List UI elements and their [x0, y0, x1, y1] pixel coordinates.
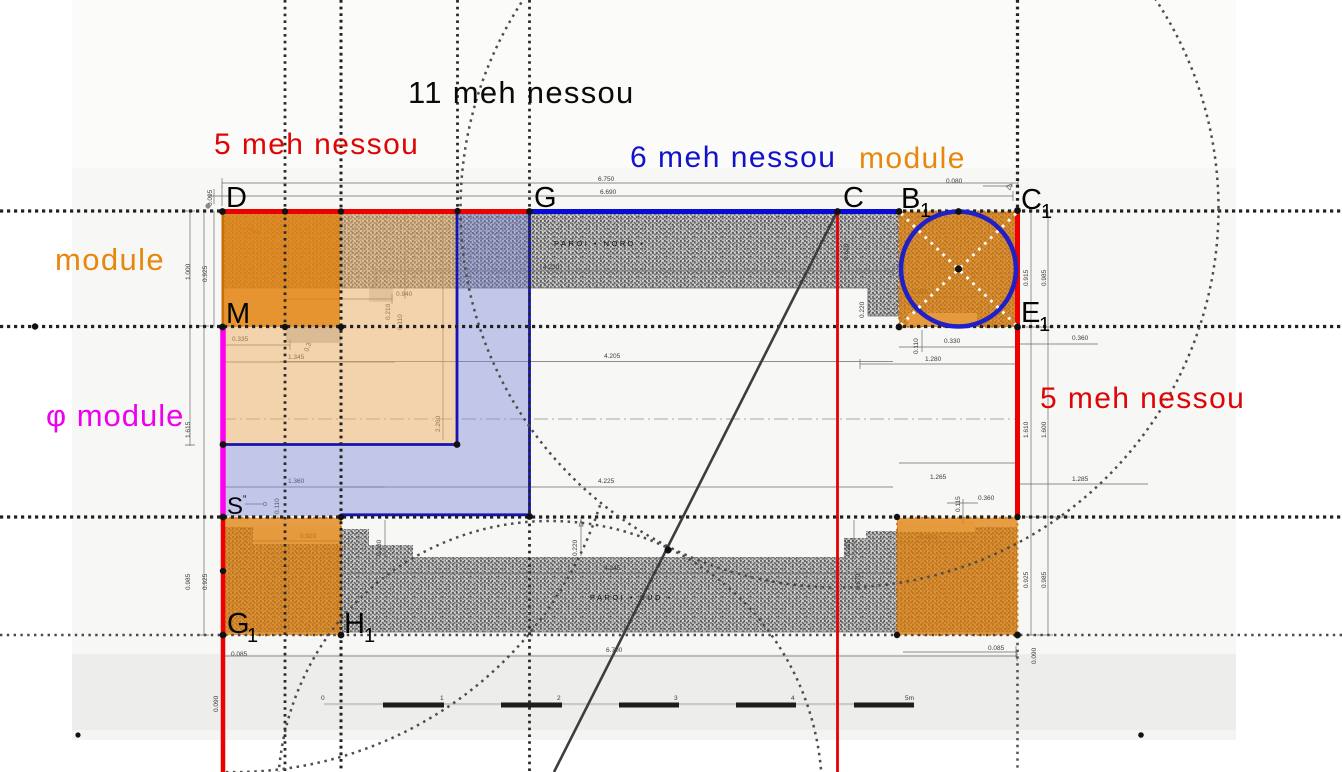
svg-text:3: 3: [674, 695, 678, 702]
svg-text:0.085: 0.085: [988, 645, 1005, 652]
svg-text:0.085: 0.085: [231, 651, 248, 658]
svg-text:PAROI • SUD •: PAROI • SUD •: [590, 593, 673, 602]
svg-text:6.690: 6.690: [600, 189, 617, 196]
svg-text:0.985: 0.985: [1041, 269, 1048, 286]
svg-text:1: 1: [1039, 314, 1050, 336]
svg-text:C: C: [1021, 184, 1042, 216]
svg-text:S: S: [227, 493, 243, 520]
svg-text:0.230: 0.230: [376, 539, 383, 556]
svg-text:0.080: 0.080: [946, 178, 963, 185]
svg-text:1.615: 1.615: [185, 421, 192, 438]
svg-text:0.220: 0.220: [859, 301, 866, 318]
svg-text:D: D: [226, 182, 247, 214]
svg-text:1: 1: [364, 625, 375, 647]
svg-text:B: B: [901, 183, 920, 215]
svg-text:module: module: [859, 142, 966, 175]
svg-text:4.225: 4.225: [598, 478, 615, 485]
svg-text:2: 2: [557, 695, 561, 702]
svg-text:0.220: 0.220: [572, 539, 579, 556]
svg-text:1.265: 1.265: [930, 474, 947, 481]
svg-text:4.205: 4.205: [604, 353, 621, 360]
svg-text:4.230: 4.230: [543, 264, 560, 271]
svg-text:0: 0: [321, 695, 325, 702]
svg-text:0.090: 0.090: [1031, 647, 1038, 664]
svg-text:0.090: 0.090: [213, 695, 220, 712]
svg-text:0.215: 0.215: [845, 539, 852, 556]
svg-text:1.600: 1.600: [1041, 421, 1048, 438]
svg-text:“: “: [243, 494, 246, 505]
svg-text:0.925: 0.925: [202, 573, 209, 590]
svg-text:G: G: [534, 182, 557, 214]
svg-text:PAROI • NORD •: PAROI • NORD •: [554, 239, 645, 248]
svg-text:0.620: 0.620: [843, 243, 850, 260]
svg-text:C: C: [843, 182, 864, 214]
svg-text:1.285: 1.285: [1072, 476, 1089, 483]
svg-text:5 meh nessou: 5 meh nessou: [1040, 382, 1245, 415]
svg-text:0.360: 0.360: [978, 495, 995, 502]
svg-text:1: 1: [440, 695, 444, 702]
svg-text:φ module: φ module: [46, 398, 184, 433]
svg-text:0.360: 0.360: [1072, 335, 1089, 342]
svg-text:4: 4: [791, 695, 795, 702]
svg-text:1: 1: [920, 200, 931, 222]
svg-text:6 meh nessou: 6 meh nessou: [630, 141, 836, 174]
svg-text:1: 1: [247, 625, 258, 647]
svg-text:1.000: 1.000: [185, 263, 192, 280]
svg-text:5 meh nessou: 5 meh nessou: [214, 128, 419, 161]
svg-text:0.330: 0.330: [944, 338, 961, 345]
svg-text:6.750: 6.750: [598, 176, 615, 183]
svg-text:E: E: [1021, 297, 1040, 329]
svg-text:0.915: 0.915: [1023, 269, 1030, 286]
svg-text:0.985: 0.985: [185, 573, 192, 590]
svg-text:0.925: 0.925: [1023, 571, 1030, 588]
svg-text:H: H: [344, 608, 365, 640]
svg-text:0.110: 0.110: [913, 338, 920, 354]
svg-text:M: M: [226, 298, 250, 330]
svg-text:11 meh nessou: 11 meh nessou: [408, 75, 635, 110]
svg-text:1: 1: [1041, 201, 1052, 223]
svg-text:0.115: 0.115: [955, 496, 962, 512]
svg-text:0.925: 0.925: [202, 265, 209, 282]
svg-text:0.985: 0.985: [1041, 571, 1048, 588]
svg-text:module: module: [55, 242, 165, 277]
svg-text:4.245: 4.245: [604, 565, 621, 572]
svg-text:1.610: 1.610: [1023, 421, 1030, 438]
svg-text:5m: 5m: [905, 695, 914, 702]
svg-text:1.280: 1.280: [925, 356, 942, 363]
